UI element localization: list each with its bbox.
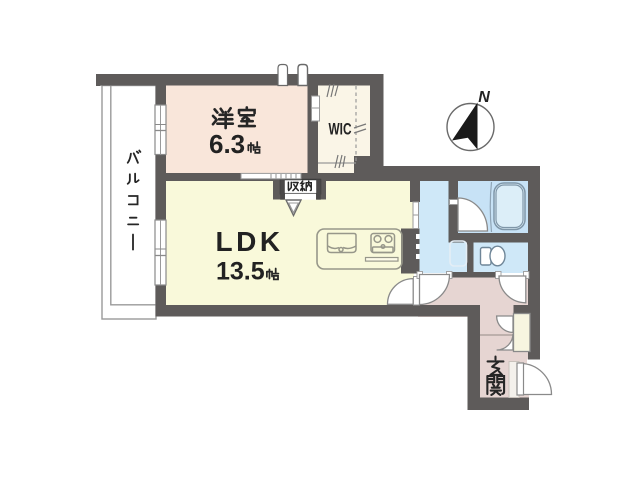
svg-text:6.3: 6.3 bbox=[209, 129, 245, 159]
svg-text:LDK: LDK bbox=[216, 226, 284, 257]
svg-text:N: N bbox=[478, 89, 490, 106]
svg-text:WIC: WIC bbox=[329, 121, 352, 139]
svg-text:13.5: 13.5 bbox=[216, 258, 265, 286]
